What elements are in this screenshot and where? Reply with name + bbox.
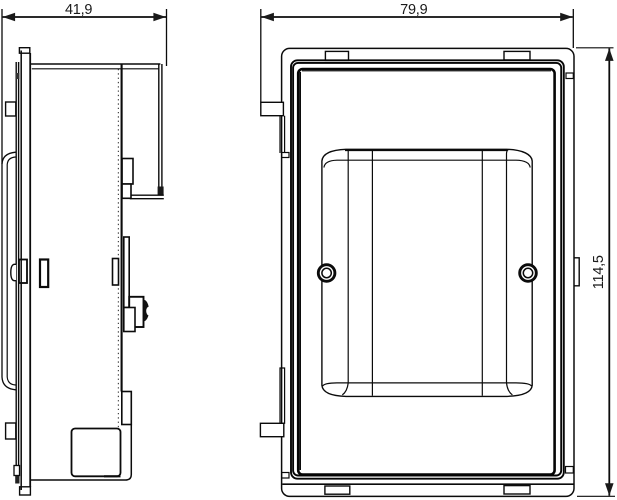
svg-text:79,9: 79,9 <box>400 2 427 18</box>
svg-text:41,9: 41,9 <box>65 2 92 18</box>
svg-text:114,5: 114,5 <box>591 255 607 289</box>
